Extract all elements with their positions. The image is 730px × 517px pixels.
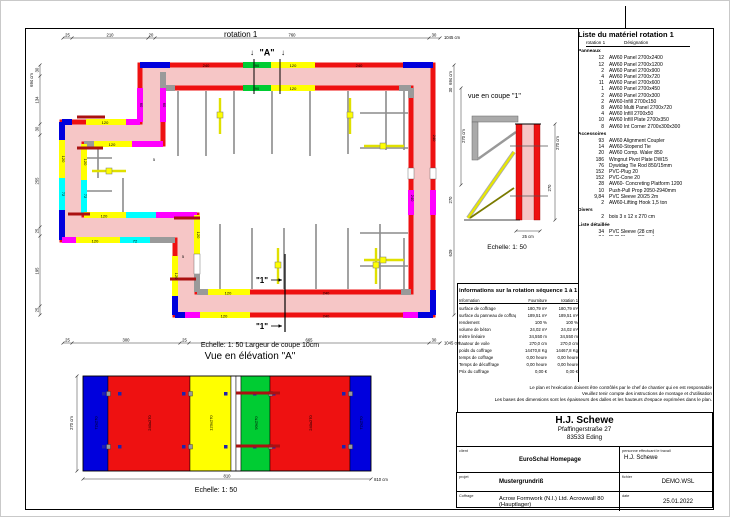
svg-text:240: 240: [356, 63, 363, 68]
svg-text:120: 120: [92, 239, 99, 244]
svg-text:30: 30: [448, 87, 453, 92]
svg-text:25: 25: [35, 307, 40, 312]
worker-cell: personne effectuant le travail H.J. Sche…: [620, 447, 712, 472]
company-band: H.J. Schewe Pfaffingerstraße 27 83533 Ed…: [457, 413, 712, 447]
elevation-panel-label: 72x270: [359, 416, 364, 430]
info-table-row: mètre linéaire34,550 m34,550 m: [459, 332, 578, 339]
elevation-title: Vue en élévation "A": [140, 351, 360, 362]
floor-plan: 240 90 120 240 90 120 240 240 120 240 12…: [28, 28, 468, 373]
svg-text:90: 90: [255, 86, 260, 91]
plan-scale-note: Echelle: 1: 50 Largeur de coupe 10cm: [150, 342, 370, 349]
info-table-title: informations sur la rotation séquence 1 …: [459, 287, 578, 295]
elevation-panel-label: 240x270: [308, 415, 313, 431]
material-list-item: 2AW60-Lifting Hook 1,5 ton: [578, 200, 714, 206]
formwork-cell: Coffrage Acrow Formwork (N.I.) Ltd. Acro…: [457, 492, 620, 511]
material-list-title: Liste du matériel rotation 1: [578, 30, 714, 40]
svg-text:25: 25: [65, 33, 70, 38]
svg-text:810 cm: 810 cm: [374, 477, 388, 482]
project-cell: projet Mustergrundriß: [457, 473, 620, 491]
info-table-body: surface de coffrage180,79 m²180,79 m²sur…: [459, 304, 578, 375]
svg-text:↓: ↓: [250, 48, 254, 57]
file-value: DEMO.WSL: [662, 479, 695, 485]
svg-text:760: 760: [289, 33, 297, 38]
material-list-item: 2bois 3 x 12 x 270 cm: [578, 214, 714, 220]
title-block: H.J. Schewe Pfaffingerstraße 27 83533 Ed…: [456, 412, 713, 508]
svg-text:"A": "A": [259, 48, 274, 58]
material-list-item: 34PVC Sleeve (23 cm): [578, 235, 714, 236]
info-table-row: volume de béton24,02 m³24,02 m³: [459, 325, 578, 332]
company-address1: Pfaffingerstraße 27: [457, 426, 712, 434]
svg-text:90: 90: [255, 63, 260, 68]
svg-text:25: 25: [65, 338, 70, 343]
svg-text:120: 120: [221, 314, 228, 319]
svg-text:120: 120: [225, 291, 232, 296]
svg-text:20: 20: [149, 33, 154, 38]
svg-text:72: 72: [83, 194, 88, 199]
elevation-panel: [236, 376, 241, 471]
info-table-row: surface de coffrage180,79 m²180,79 m²: [459, 304, 578, 311]
elevation-panels: 72x270240x270120x27090x270240x27072x270: [83, 376, 371, 471]
info-table-row: hauteur de voile270,0 cm270,0 cm: [459, 339, 578, 346]
svg-text:195: 195: [35, 267, 40, 275]
svg-text:↓: ↓: [281, 48, 285, 57]
svg-text:240: 240: [432, 135, 437, 142]
svg-text:629: 629: [448, 249, 453, 257]
info-table-row: Prix du coffrage0,00 €0,00 €: [459, 367, 578, 374]
client-value: EuroSchal Homepage: [519, 457, 581, 463]
svg-text:240: 240: [410, 195, 415, 202]
svg-text:120: 120: [174, 273, 179, 280]
file-cell: fichier DEMO.WSL: [620, 473, 712, 491]
svg-text:270: 270: [448, 196, 453, 204]
svg-text:30: 30: [35, 126, 40, 131]
material-list-item: 8AW60 Int Corner 2700x300x300: [578, 124, 714, 130]
worker-value: H.J. Schewe: [620, 453, 712, 461]
svg-text:240: 240: [323, 314, 330, 319]
formwork-value: Acrow Formwork (N.I.) Ltd. Acrowwall 80 …: [499, 496, 619, 508]
disclaimer: Le plan et l'exécution doivent être cont…: [420, 385, 712, 403]
svg-text:300: 300: [123, 338, 131, 343]
svg-text:1045 cm: 1045 cm: [444, 35, 461, 40]
svg-text:120: 120: [196, 232, 201, 239]
svg-text:240: 240: [203, 63, 210, 68]
elevation-panel-label: 240x270: [147, 415, 152, 431]
info-table-header: Information Fourniture rotation 1: [459, 295, 578, 304]
svg-text:120: 120: [290, 63, 297, 68]
material-list-items: Panneaux12AW60 Panel 2700x240012AW60 Pan…: [578, 49, 714, 236]
svg-text:694 cm: 694 cm: [29, 73, 34, 87]
svg-text:240: 240: [323, 291, 330, 296]
elevation-scale: Echelle: 1: 50: [195, 487, 238, 494]
material-list: Liste du matériel rotation 1 rotation 1 …: [578, 30, 714, 236]
info-divider-h: [457, 283, 578, 284]
svg-text:72: 72: [61, 192, 66, 197]
info-table-row: rendement100 %100 %: [459, 318, 578, 325]
elevation-panel-label: 120x270: [209, 415, 214, 431]
section-props: [468, 152, 514, 218]
drawing-sheet: rotation 1: [0, 0, 730, 517]
svg-text:270: 270: [547, 184, 552, 192]
svg-text:120: 120: [290, 86, 297, 91]
svg-text:270 cm: 270 cm: [555, 136, 560, 150]
svg-text:270 cm: 270 cm: [69, 416, 74, 430]
svg-text:"1": "1": [256, 322, 268, 331]
project-value: Mustergrundriß: [499, 479, 543, 485]
material-list-header: rotation 1 Désignation: [586, 40, 690, 47]
svg-text:120: 120: [61, 156, 66, 163]
elevation-panel-label: 72x270: [94, 416, 99, 430]
svg-text:30: 30: [432, 33, 437, 38]
svg-text:255: 255: [35, 177, 40, 185]
svg-text:120: 120: [109, 142, 116, 147]
section-view: vue en coupe "1" 270 cm 270: [460, 88, 572, 255]
client-cell: client EuroSchal Homepage: [457, 447, 620, 472]
section-view-title: vue en coupe "1": [468, 93, 521, 100]
svg-text:810: 810: [224, 474, 232, 479]
svg-text:25 cm: 25 cm: [522, 234, 534, 239]
svg-text:134: 134: [35, 96, 40, 104]
svg-text:25: 25: [35, 228, 40, 233]
svg-text:210: 210: [107, 33, 115, 38]
date-cell: date 25.01.2022: [620, 492, 712, 511]
svg-text:30: 30: [35, 67, 40, 72]
rotation-info-table: informations sur la rotation séquence 1 …: [459, 287, 578, 374]
date-value: 25.01.2022: [663, 499, 693, 505]
dimension-top: 25 210 20 760 30 1045 cm: [62, 33, 461, 41]
svg-text:72: 72: [133, 239, 138, 244]
svg-text:120: 120: [101, 214, 108, 219]
svg-text:120: 120: [102, 120, 109, 125]
elevation-view: 72x270240x270120x27090x270240x27072x270: [58, 368, 390, 500]
dimension-left: 694 cm 30 134 30 255 25 195 25: [29, 64, 42, 317]
svg-text:30: 30: [432, 338, 437, 343]
info-table-row: poids du coffrage14470,8 Kg14467,8 Kg: [459, 346, 578, 353]
company-name: H.J. Schewe: [457, 413, 712, 426]
elevation-panel-label: 90x270: [254, 416, 259, 430]
svg-text:60: 60: [139, 103, 144, 108]
section-scale: Echelle: 1: 50: [487, 244, 527, 251]
info-table-row: surface du panneau de coffrage189,51 m²1…: [459, 311, 578, 318]
info-table-row: Temps de décoffrage0,00 heure0,00 heure: [459, 360, 578, 367]
plan-walls: [62, 65, 433, 315]
svg-text:120: 120: [83, 159, 88, 166]
svg-text:60: 60: [162, 103, 167, 108]
company-address2: 83533 Eding: [457, 434, 712, 442]
elevation-panel: [231, 376, 236, 471]
svg-text:694 cm: 694 cm: [448, 71, 453, 85]
svg-text:"1": "1": [256, 276, 268, 285]
info-table-row: temps de coffrage0,00 heure0,00 heure: [459, 353, 578, 360]
frame-tick: [625, 6, 626, 28]
